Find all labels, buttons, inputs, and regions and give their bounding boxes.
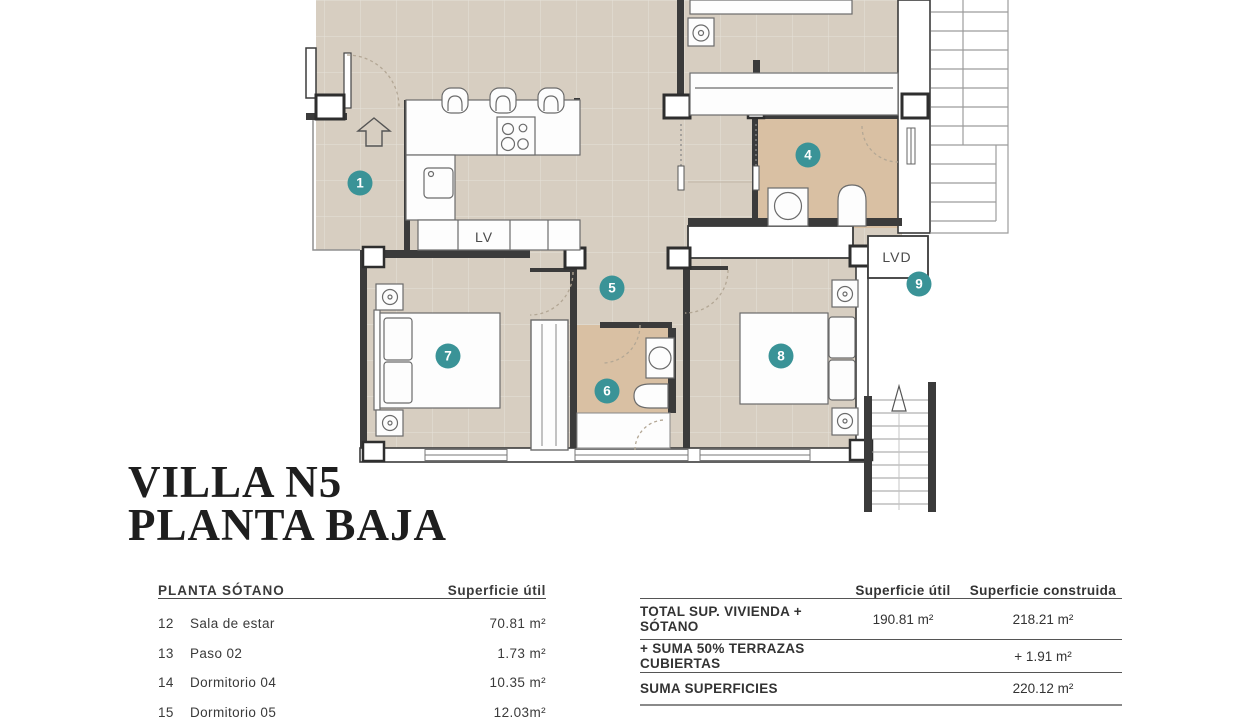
room-area: 10.35 m² — [490, 675, 546, 690]
svg-text:7: 7 — [444, 349, 452, 364]
stair-direction-arrow-icon — [892, 386, 906, 411]
room-name: Dormitorio 04 — [190, 675, 490, 690]
table-row: + SUMA 50% TERRAZAS CUBIERTAS + 1.91 m² — [640, 640, 1122, 673]
nightstand — [832, 280, 858, 307]
headboard — [374, 310, 380, 410]
table-row: 12 Sala de estar 70.81 m² — [158, 609, 546, 639]
sink — [646, 338, 674, 378]
total-construida-value: 218.21 m² — [964, 612, 1122, 627]
terraces-label: + SUMA 50% TERRAZAS CUBIERTAS — [640, 641, 842, 671]
room-name: Dormitorio 05 — [190, 705, 494, 720]
terraces-construida-value: + 1.91 m² — [964, 649, 1122, 664]
svg-text:4: 4 — [804, 148, 812, 163]
table-row: TOTAL SUP. VIVIENDA + SÓTANO 190.81 m² 2… — [640, 599, 1122, 640]
pillow — [829, 360, 855, 400]
room-badge-5: 5 — [600, 276, 625, 301]
kitchen-counter-bottom — [418, 220, 580, 250]
svg-text:1: 1 — [356, 176, 364, 191]
room-badge-6: 6 — [595, 379, 620, 404]
stairs-exterior-top — [930, 0, 1008, 233]
sum-label: SUMA SUPERFICIES — [640, 681, 842, 696]
svg-text:5: 5 — [608, 281, 616, 296]
table-row: 13 Paso 02 1.73 m² — [158, 639, 546, 669]
cooktop — [497, 117, 535, 155]
room-area: 12.03m² — [494, 705, 546, 720]
plan-title: VILLA N5 PLANTA BAJA — [128, 461, 447, 547]
room-number: 14 — [158, 675, 190, 690]
nightstand — [376, 284, 403, 310]
room-area: 1.73 m² — [497, 646, 546, 661]
bar-stool — [538, 88, 564, 113]
svg-text:8: 8 — [777, 349, 785, 364]
pillow — [829, 317, 855, 358]
table-row: SUMA SUPERFICIES 220.12 m² — [640, 673, 1122, 706]
wardrobe — [690, 73, 898, 115]
room-badge-9: 9 — [907, 272, 932, 297]
svg-text:9: 9 — [915, 277, 923, 292]
pillow — [384, 318, 412, 360]
totals-surface-table: Superficie útil Superficie construida TO… — [640, 570, 1122, 706]
sum-construida-value: 220.12 m² — [964, 681, 1122, 696]
room-number: 12 — [158, 616, 190, 631]
totals-table-header: Superficie útil Superficie construida — [640, 570, 1122, 599]
room-number: 15 — [158, 705, 190, 720]
basement-table-title: PLANTA SÓTANO — [158, 583, 285, 598]
bar-stool — [490, 88, 516, 113]
bar-stool — [442, 88, 468, 113]
plan-title-line1: VILLA N5 — [128, 461, 447, 504]
room-badge-8: 8 — [769, 344, 794, 369]
room-badge-7: 7 — [436, 344, 461, 369]
col-header-util: Superficie útil — [842, 583, 964, 598]
toilet — [634, 384, 668, 408]
stairs-exterior-bottom — [864, 382, 936, 512]
bed — [690, 0, 852, 14]
basement-surface-table: PLANTA SÓTANO Superficie útil 12 Sala de… — [158, 570, 546, 720]
table-row: 14 Dormitorio 04 10.35 m² — [158, 668, 546, 698]
room-badge-4: 4 — [796, 143, 821, 168]
nightstand — [688, 18, 714, 46]
nightstand — [832, 408, 858, 435]
room-name: Paso 02 — [190, 646, 497, 661]
toilet — [838, 185, 866, 226]
room-number: 13 — [158, 646, 190, 661]
table-row: 15 Dormitorio 05 12.03m² — [158, 698, 546, 720]
lvd-label: LVD — [882, 249, 911, 265]
basement-table-header: PLANTA SÓTANO Superficie útil — [158, 570, 546, 599]
lv-label: LV — [475, 229, 493, 245]
total-util-value: 190.81 m² — [842, 612, 964, 627]
svg-text:6: 6 — [603, 384, 611, 399]
col-header-construida: Superficie construida — [964, 583, 1122, 598]
room-area: 70.81 m² — [490, 616, 546, 631]
pillow — [384, 362, 412, 403]
room-name: Sala de estar — [190, 616, 490, 631]
shower — [577, 413, 670, 448]
wardrobe — [531, 320, 568, 450]
room-badge-1: 1 — [348, 171, 373, 196]
nightstand — [376, 410, 403, 436]
basement-table-col-header: Superficie útil — [448, 583, 546, 598]
plan-title-line2: PLANTA BAJA — [128, 504, 447, 547]
total-label: TOTAL SUP. VIVIENDA + SÓTANO — [640, 604, 842, 634]
floor-plan-page: LVD — [0, 0, 1240, 720]
floor-plan-svg: LVD — [0, 0, 1240, 512]
